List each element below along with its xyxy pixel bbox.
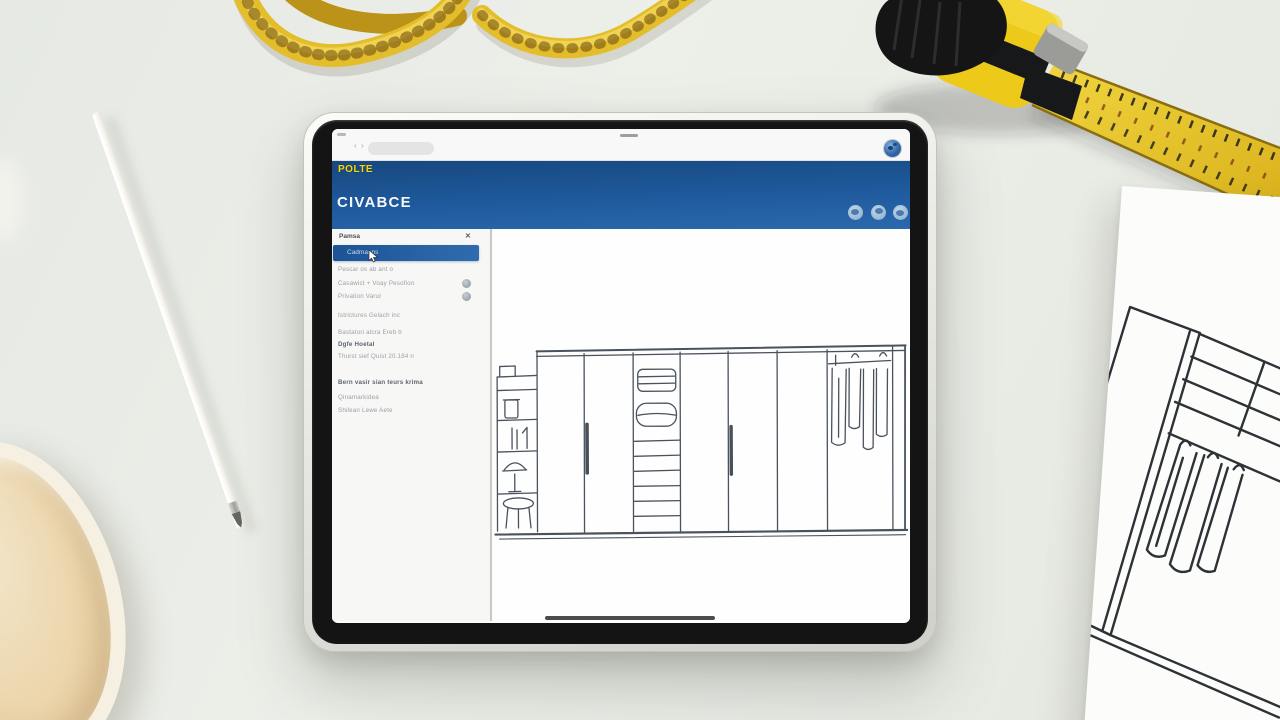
sidebar-item[interactable]: Qinamarkidea xyxy=(338,394,488,406)
cart-icon[interactable] xyxy=(893,205,908,220)
sidebar-item-selected[interactable]: Cadmanns xyxy=(333,245,479,261)
app-header: POLTE CIVABCE Set racing Mircocie xyxy=(332,161,910,229)
sidebar-item[interactable]: Privation Varur xyxy=(338,293,488,305)
sewing-tape-icon xyxy=(220,0,720,88)
sidebar-item[interactable]: Bastatori alcra Ereb tr xyxy=(338,329,488,341)
stylus-pencil-icon xyxy=(92,111,246,529)
sidebar-item[interactable]: Shilean Lewe Aete xyxy=(338,407,488,419)
sidebar-item[interactable]: Thurst sief Quist 20.184 n xyxy=(338,353,488,365)
mouse-cursor-icon xyxy=(368,249,379,263)
sidebar-header: Pamsa xyxy=(339,233,360,240)
item-badge-icon xyxy=(462,279,471,288)
window-control-mark xyxy=(337,133,346,136)
address-bar[interactable] xyxy=(368,142,434,155)
sidebar-item[interactable]: Istrictures Gelach inc xyxy=(338,312,488,324)
home-indicator[interactable] xyxy=(545,616,715,620)
pencil-shadow xyxy=(105,116,257,533)
tablet-bezel: ‹ › POLTE CIVABCE Set racing Mircocie xyxy=(312,120,928,644)
sidebar-close-icon[interactable]: ✕ xyxy=(465,232,471,240)
paper-sketch xyxy=(1083,186,1280,720)
profile-globe-icon[interactable] xyxy=(884,140,901,157)
item-badge-icon xyxy=(462,292,471,301)
user-icon[interactable] xyxy=(871,205,886,220)
page-title: CIVABCE xyxy=(337,194,412,211)
sidebar-item[interactable]: Casawict + Voay Pesofion xyxy=(338,280,488,292)
tablet-screen: ‹ › POLTE CIVABCE Set racing Mircocie xyxy=(332,129,910,623)
sidebar: Pamsa ✕ Cadmanns Pescar os ab ant o Casa… xyxy=(332,229,490,621)
brand-logo: POLTE xyxy=(338,164,373,175)
back-icon[interactable]: ‹ xyxy=(354,141,357,151)
background-blur-object xyxy=(0,158,24,242)
content-area: Pamsa ✕ Cadmanns Pescar os ab ant o Casa… xyxy=(332,229,910,621)
sidebar-item[interactable]: Bern vasir sian teurs krima xyxy=(338,379,488,391)
browser-bar: ‹ › xyxy=(332,129,910,161)
desk-scene: ‹ › POLTE CIVABCE Set racing Mircocie xyxy=(0,0,1280,720)
tablet: ‹ › POLTE CIVABCE Set racing Mircocie xyxy=(303,112,937,652)
design-canvas[interactable] xyxy=(492,229,908,621)
forward-icon[interactable]: › xyxy=(361,141,364,151)
wardrobe-drawing-icon xyxy=(492,229,908,621)
sidebar-item[interactable]: Pescar os ab ant o xyxy=(338,266,488,278)
ceramic-cup-icon xyxy=(0,416,161,720)
hand-drawn-wardrobe-sketch-icon xyxy=(1083,293,1280,720)
globe-icon[interactable] xyxy=(848,205,863,220)
sidebar-item[interactable]: Dgfe Hoetal xyxy=(338,341,488,353)
screen-top-mark xyxy=(620,134,638,137)
